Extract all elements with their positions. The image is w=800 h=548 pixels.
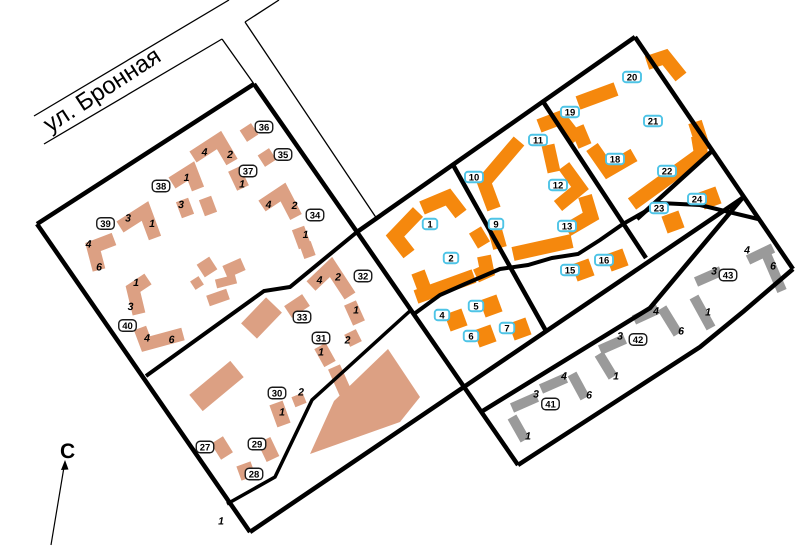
svg-text:32: 32 xyxy=(358,271,369,282)
svg-text:16: 16 xyxy=(599,255,610,266)
svg-text:30: 30 xyxy=(272,388,283,399)
svg-text:21: 21 xyxy=(648,116,659,127)
svg-text:22: 22 xyxy=(662,166,673,177)
svg-text:2: 2 xyxy=(226,149,233,161)
svg-text:1: 1 xyxy=(318,347,324,359)
svg-text:3: 3 xyxy=(533,389,539,401)
svg-text:6: 6 xyxy=(169,334,175,346)
svg-text:2: 2 xyxy=(334,272,341,284)
svg-text:38: 38 xyxy=(156,181,167,192)
svg-text:42: 42 xyxy=(633,335,644,346)
svg-text:2: 2 xyxy=(291,200,298,212)
svg-text:3: 3 xyxy=(178,199,184,211)
svg-text:2: 2 xyxy=(448,253,453,264)
svg-text:4: 4 xyxy=(652,306,659,318)
svg-text:4: 4 xyxy=(743,245,750,257)
svg-text:4: 4 xyxy=(316,275,323,287)
svg-text:43: 43 xyxy=(723,270,734,281)
svg-text:4: 4 xyxy=(439,310,445,321)
svg-text:2: 2 xyxy=(344,335,351,347)
svg-text:33: 33 xyxy=(297,312,308,323)
svg-text:35: 35 xyxy=(278,150,289,161)
svg-text:24: 24 xyxy=(692,194,703,205)
svg-text:3: 3 xyxy=(125,213,131,225)
svg-text:19: 19 xyxy=(565,107,576,118)
svg-text:36: 36 xyxy=(259,122,270,133)
svg-text:37: 37 xyxy=(243,166,254,177)
svg-text:С: С xyxy=(60,440,75,463)
svg-text:11: 11 xyxy=(533,135,544,146)
svg-text:41: 41 xyxy=(545,399,556,410)
svg-text:34: 34 xyxy=(310,210,321,221)
svg-text:18: 18 xyxy=(610,154,621,165)
svg-text:31: 31 xyxy=(316,333,327,344)
svg-text:6: 6 xyxy=(96,262,102,274)
svg-text:1: 1 xyxy=(427,219,433,230)
svg-text:5: 5 xyxy=(473,301,479,312)
svg-text:1: 1 xyxy=(184,172,190,184)
svg-text:20: 20 xyxy=(627,72,638,83)
svg-text:4: 4 xyxy=(265,199,272,211)
svg-text:12: 12 xyxy=(553,180,564,191)
svg-text:27: 27 xyxy=(200,442,211,453)
svg-text:1: 1 xyxy=(239,179,245,191)
svg-text:6: 6 xyxy=(678,326,684,338)
svg-text:4: 4 xyxy=(143,333,150,345)
svg-text:1: 1 xyxy=(303,229,309,241)
svg-text:1: 1 xyxy=(705,307,711,319)
svg-text:13: 13 xyxy=(562,221,573,232)
svg-text:1: 1 xyxy=(353,305,359,317)
svg-text:40: 40 xyxy=(122,321,133,332)
svg-text:10: 10 xyxy=(469,172,480,183)
svg-text:6: 6 xyxy=(770,261,776,273)
svg-text:1: 1 xyxy=(218,516,224,528)
svg-text:2: 2 xyxy=(297,387,304,399)
svg-text:29: 29 xyxy=(252,439,263,450)
svg-text:1: 1 xyxy=(525,431,531,443)
svg-text:3: 3 xyxy=(617,331,623,343)
svg-text:15: 15 xyxy=(565,265,576,276)
svg-text:6: 6 xyxy=(586,390,592,402)
svg-text:6: 6 xyxy=(468,331,473,342)
svg-text:3: 3 xyxy=(128,301,134,313)
svg-text:1: 1 xyxy=(133,277,139,289)
svg-text:1: 1 xyxy=(149,218,155,230)
svg-text:28: 28 xyxy=(249,469,260,480)
svg-text:1: 1 xyxy=(613,371,619,383)
svg-text:4: 4 xyxy=(85,239,92,251)
svg-text:7: 7 xyxy=(504,323,509,334)
svg-text:4: 4 xyxy=(201,147,208,159)
svg-text:39: 39 xyxy=(100,219,111,230)
svg-text:9: 9 xyxy=(493,219,498,230)
svg-text:4: 4 xyxy=(560,371,567,383)
svg-text:1: 1 xyxy=(279,407,285,419)
svg-text:23: 23 xyxy=(654,203,665,214)
svg-text:3: 3 xyxy=(711,266,717,278)
